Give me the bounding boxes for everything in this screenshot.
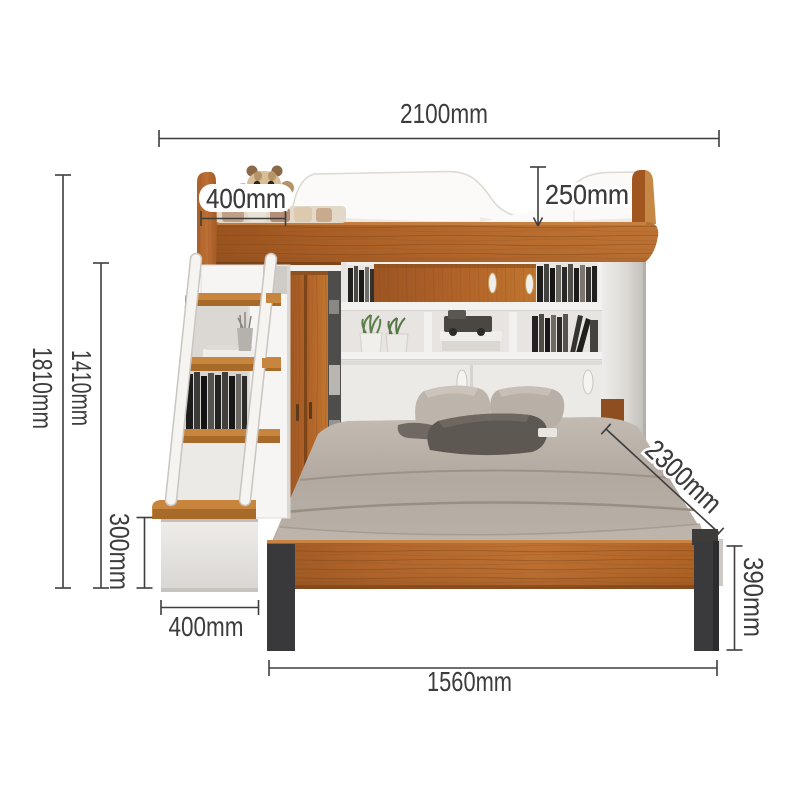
svg-text:2100mm: 2100mm bbox=[400, 98, 488, 129]
svg-text:1410mm: 1410mm bbox=[66, 350, 97, 426]
svg-text:390mm: 390mm bbox=[738, 557, 769, 637]
svg-text:400mm: 400mm bbox=[206, 183, 286, 214]
svg-text:250mm: 250mm bbox=[545, 179, 629, 210]
svg-text:1560mm: 1560mm bbox=[427, 666, 512, 697]
svg-text:1810mm: 1810mm bbox=[27, 347, 58, 429]
svg-text:400mm: 400mm bbox=[169, 611, 244, 642]
svg-text:300mm: 300mm bbox=[104, 513, 135, 590]
